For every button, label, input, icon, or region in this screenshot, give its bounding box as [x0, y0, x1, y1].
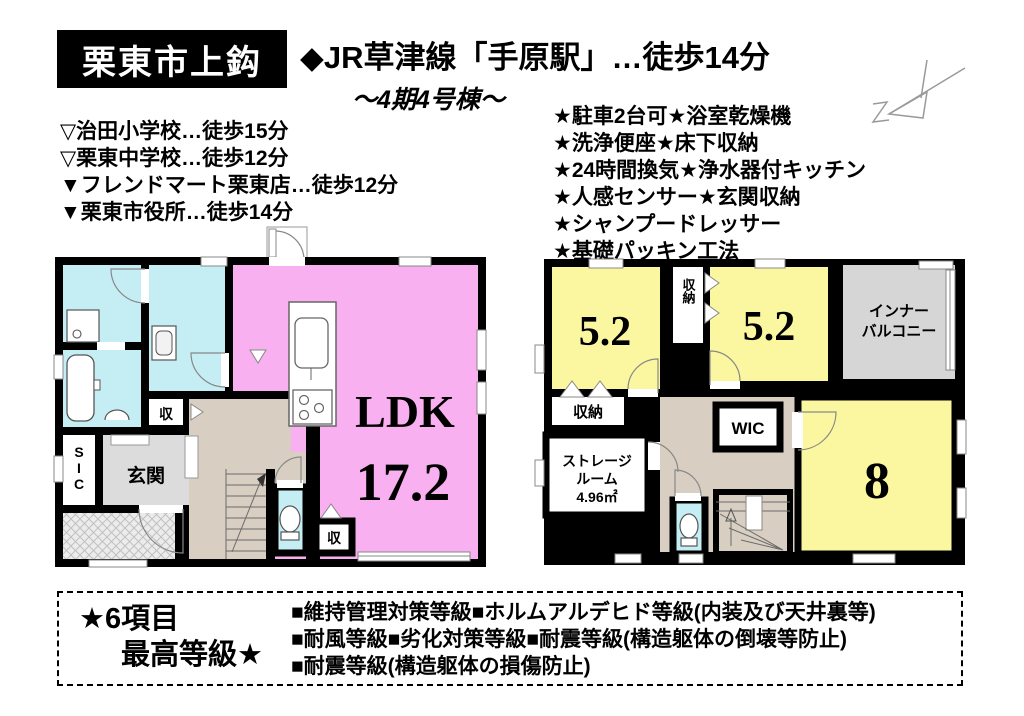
toilet-icon: [280, 506, 300, 540]
floorplan-2f: 5.2 5.2 8 収納 収納 インナー バルコニー ストレージ ルーム 4.9…: [533, 250, 983, 575]
inner-balcony: [843, 265, 955, 379]
kitchen-stove: [293, 390, 332, 424]
kitchen-sink: [295, 318, 328, 368]
label-balcony-1: インナー: [869, 303, 929, 320]
toilet-icon-2f: [680, 514, 698, 546]
label-room-c: 8: [864, 453, 890, 510]
ratings-details: ■維持管理対策等級■ホルムアルデヒド等級(内装及び天井裏等) ■耐風等級■劣化対…: [291, 599, 876, 680]
feature-item: ★洗浄便座★床下収納: [553, 130, 866, 157]
label-closet-a: 収: [159, 406, 174, 422]
ratings-headline: ★6項目 最高等級★: [79, 601, 263, 673]
ratings-line: ■耐風等級■劣化対策等級■耐震等級(構造躯体の倒壊等防止): [291, 626, 876, 653]
label-entrance: 玄関: [127, 464, 165, 487]
label-closet-left: 収納: [573, 403, 603, 421]
kitchen-counter: [289, 302, 336, 426]
label-storage-area: 4.96㎡: [576, 489, 617, 505]
label-wic: WIC: [731, 419, 764, 438]
ratings-headline-line2: 最高等級★: [121, 637, 263, 673]
ratings-box: ★6項目 最高等級★ ■維持管理対策等級■ホルムアルデヒド等級(内装及び天井裏等…: [57, 591, 963, 686]
label-room-b: 5.2: [743, 304, 796, 350]
floorplan-1f: LDK 17.2 玄関 SIC 収 収: [53, 222, 503, 570]
label-closet-b: 収: [327, 530, 342, 546]
label-ldk-size: 17.2: [356, 452, 451, 512]
access-item: ▼フレンドマート栗東店…徒歩12分: [60, 172, 398, 199]
label-ldk: LDK: [355, 386, 455, 437]
label-storage-1: ストレージ: [562, 453, 632, 469]
label-storage-2: ルーム: [576, 471, 618, 487]
flyer-page: { "header": { "location_badge": "栗東市上鈎",…: [0, 0, 1024, 716]
feature-item: ★24時間換気★浄水器付キッチン: [553, 157, 866, 184]
location-badge: 栗東市上鈎: [57, 30, 287, 88]
label-closet-top: 収納: [681, 278, 696, 305]
label-room-a: 5.2: [579, 309, 632, 355]
access-list: ▽治田小学校…徒歩15分 ▽栗東中学校…徒歩12分 ▼フレンドマート栗東店…徒歩…: [60, 118, 398, 226]
page-title: ◆JR草津線「手原駅」…徒歩14分: [300, 32, 770, 77]
washing-machine-icon: [152, 326, 176, 360]
building-subtitle: ～4期4号棟～: [352, 80, 505, 116]
access-item: ▽治田小学校…徒歩15分: [60, 118, 398, 145]
label-sic: SIC: [71, 444, 87, 492]
north-arrow-icon: [865, 52, 975, 137]
ldk-exterior-door: [267, 227, 307, 261]
features-list: ★駐車2台可★浴室乾燥機 ★洗浄便座★床下収納 ★24時間換気★浄水器付キッチン…: [553, 103, 866, 265]
access-item: ▽栗東中学校…徒歩12分: [60, 145, 398, 172]
porch: [63, 513, 175, 559]
ratings-line: ■維持管理対策等級■ホルムアルデヒド等級(内装及び天井裏等): [291, 599, 876, 626]
feature-item: ★人感センサー★玄関収納: [553, 184, 866, 211]
ratings-line: ■耐震等級(構造躯体の損傷防止): [291, 653, 876, 680]
feature-item: ★シャンプードレッサー: [553, 211, 866, 238]
ratings-headline-line1: ★6項目: [79, 601, 263, 637]
washbasin-icon: [67, 310, 99, 342]
label-balcony-2: バルコニー: [862, 323, 937, 340]
feature-item: ★駐車2台可★浴室乾燥機: [553, 103, 866, 130]
